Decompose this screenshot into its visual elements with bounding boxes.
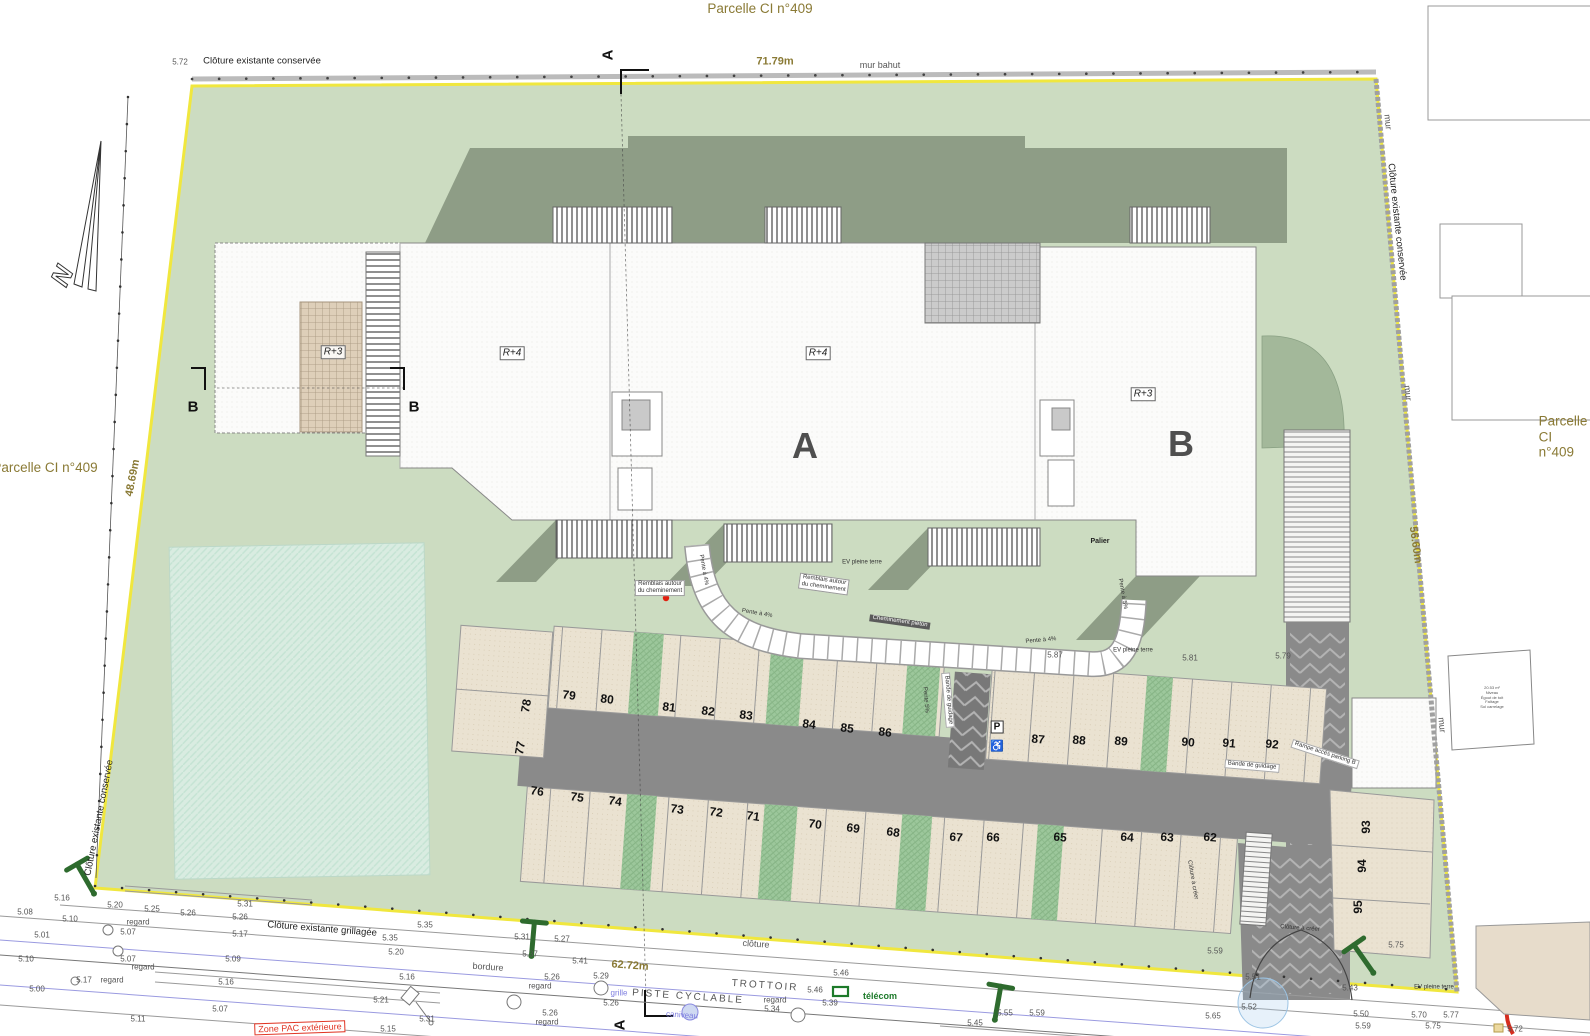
roof-grid-gray <box>925 243 1040 323</box>
building-a-label: A <box>792 425 818 466</box>
wheelchair-icon: ♿ <box>990 740 1004 753</box>
terrace-grid <box>300 302 362 432</box>
survey-dot <box>663 595 669 601</box>
building-b-label: B <box>1168 423 1194 464</box>
handicap-p-sign: P <box>991 721 1004 734</box>
neighbor-yard <box>1476 922 1590 1020</box>
site-plan: N A B Parcelle CI n°409Parcelle CI n°409… <box>0 0 1590 1036</box>
north-arrow-icon: N <box>44 141 101 291</box>
stair-ramp-b <box>1284 430 1350 622</box>
telecom-box <box>833 987 848 996</box>
grille-drain <box>682 1004 698 1020</box>
lawn-area <box>169 543 430 879</box>
roof-slats-west <box>366 252 400 456</box>
platform-east <box>1352 698 1436 788</box>
boundary-marker <box>1494 1024 1503 1032</box>
turning-circle <box>1238 978 1288 1028</box>
north-label: N <box>44 260 80 291</box>
site-plan-drawing: N A B <box>0 0 1590 1036</box>
neighbor-buildings <box>1428 6 1590 750</box>
parking-column-east <box>1330 790 1434 958</box>
